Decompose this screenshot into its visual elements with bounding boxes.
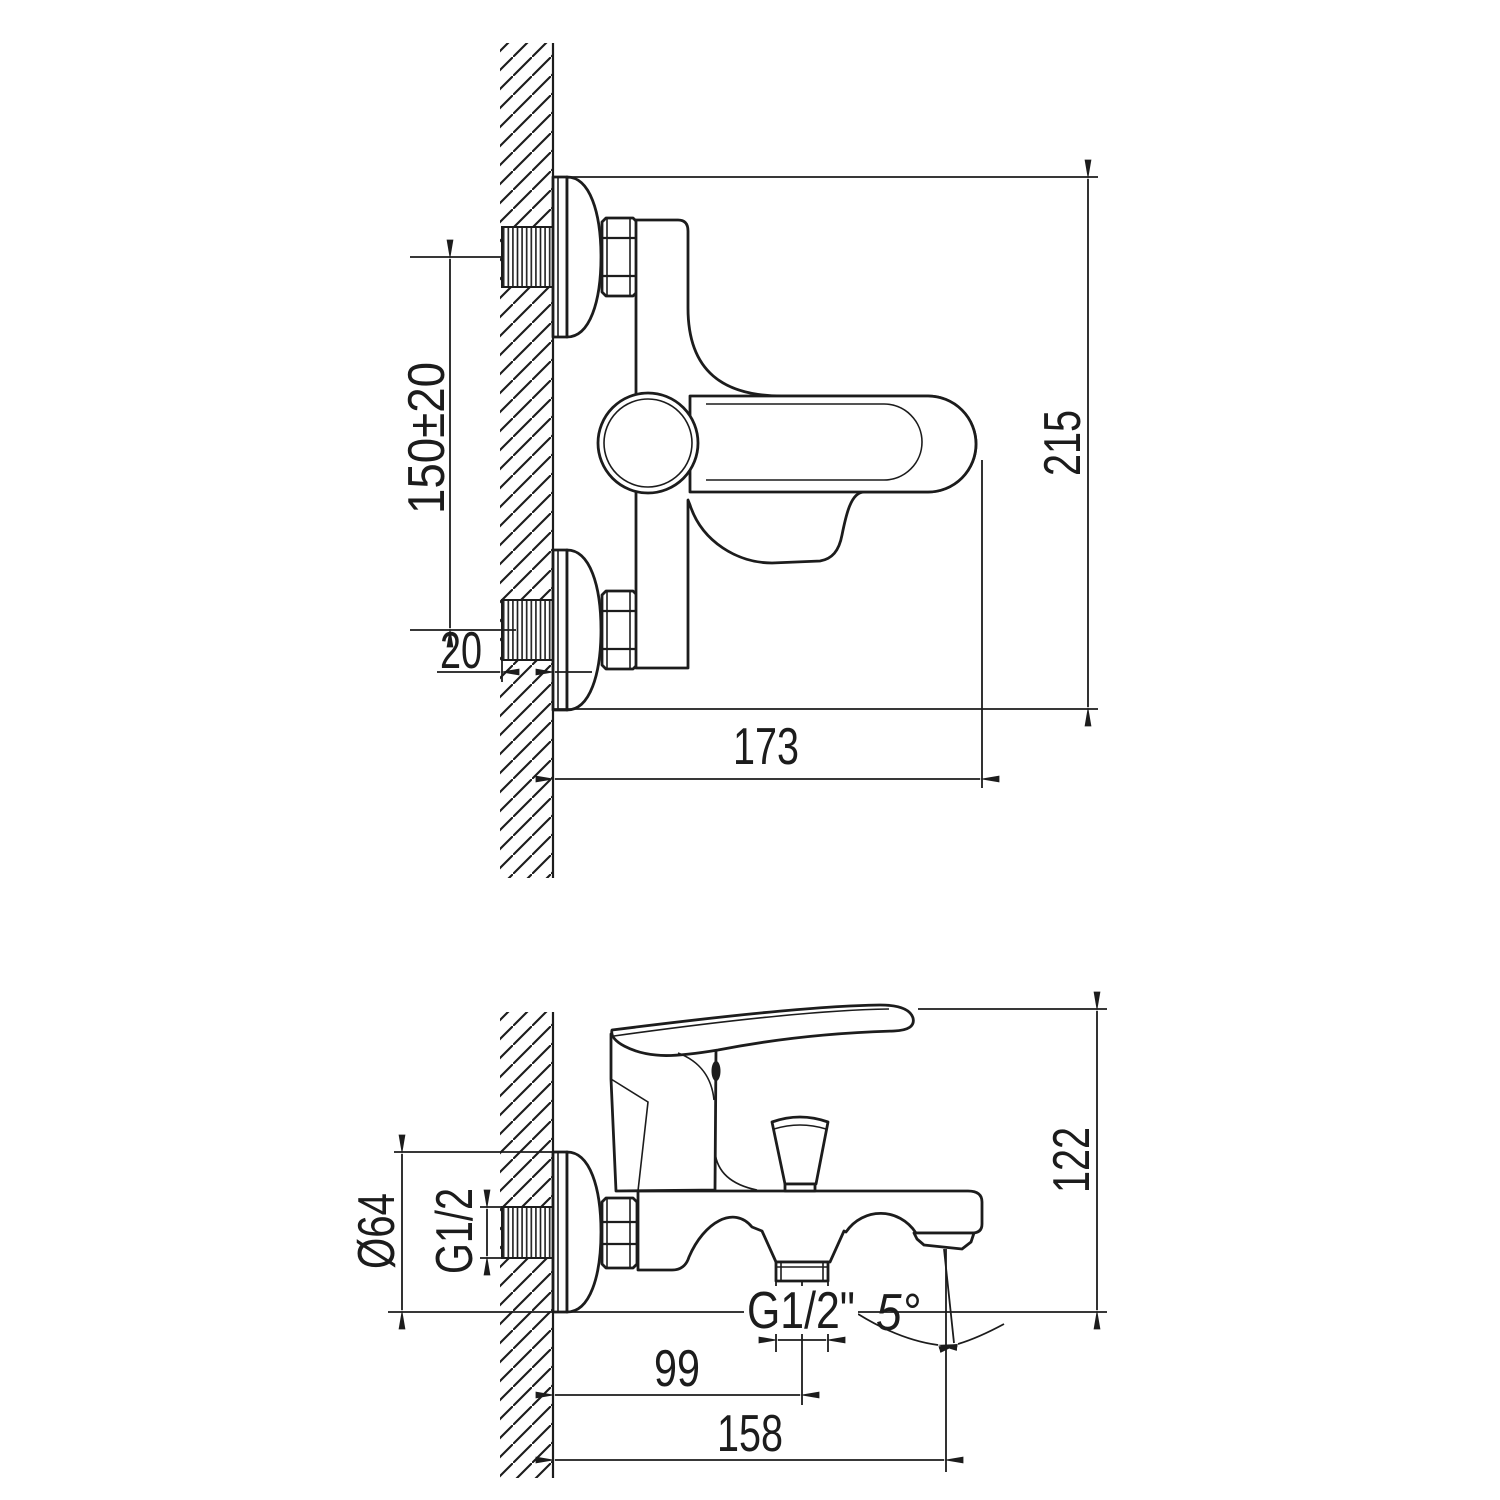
spout-body-side xyxy=(638,1191,982,1270)
side-escutcheon-plate xyxy=(553,1152,567,1312)
dim-label-158: 158 xyxy=(717,1405,783,1463)
drawing-page: 215 150±20 20 173 xyxy=(0,0,1500,1500)
dim-side-hose-offset: 99 xyxy=(555,1340,800,1398)
upper-thread xyxy=(502,227,553,287)
spout-aerator xyxy=(914,1233,974,1249)
dim-front-mount-spacing: 150±20 xyxy=(398,257,516,630)
dim-label-5deg: 5° xyxy=(876,1284,920,1342)
handle-knob-front xyxy=(598,393,698,493)
lever-front xyxy=(690,396,976,492)
dim-label-122: 122 xyxy=(1043,1127,1101,1193)
faucet-technical-drawing: 215 150±20 20 173 xyxy=(0,0,1500,1500)
dim-label-215: 215 xyxy=(1034,410,1092,476)
wall-hatch-front xyxy=(500,43,553,878)
dim-side-inlet-thread: G1/2 xyxy=(426,1188,504,1274)
dim-label-173: 173 xyxy=(733,718,799,776)
dim-label-g12-inlet: G1/2 xyxy=(426,1188,484,1274)
side-escutcheon-dome xyxy=(567,1152,601,1312)
dim-label-20: 20 xyxy=(440,622,482,680)
upper-escutcheon-plate xyxy=(553,177,567,337)
hose-outlet-thread xyxy=(776,1262,828,1281)
dim-side-spout-reach: 158 xyxy=(555,1405,944,1463)
lever-pivot-screw xyxy=(712,1061,721,1081)
diverter-neck xyxy=(785,1184,815,1191)
dim-side-hose-outlet-thread: G1/2" xyxy=(744,1281,858,1405)
side-view: Ø64 G1/2 122 5° xyxy=(348,1005,1107,1478)
lower-escutcheon-plate xyxy=(553,550,567,710)
dim-label-99: 99 xyxy=(654,1340,700,1398)
dim-label-150-20: 150±20 xyxy=(398,362,456,514)
side-thread xyxy=(502,1207,553,1258)
front-view: 215 150±20 20 173 xyxy=(398,43,1098,878)
spout-angle-annotation: 5° xyxy=(858,1249,1004,1472)
dim-label-d64: Ø64 xyxy=(348,1193,406,1269)
lower-escutcheon-dome xyxy=(567,550,601,710)
upper-escutcheon-dome xyxy=(567,177,601,337)
dim-label-g12-outlet: G1/2" xyxy=(747,1282,855,1340)
